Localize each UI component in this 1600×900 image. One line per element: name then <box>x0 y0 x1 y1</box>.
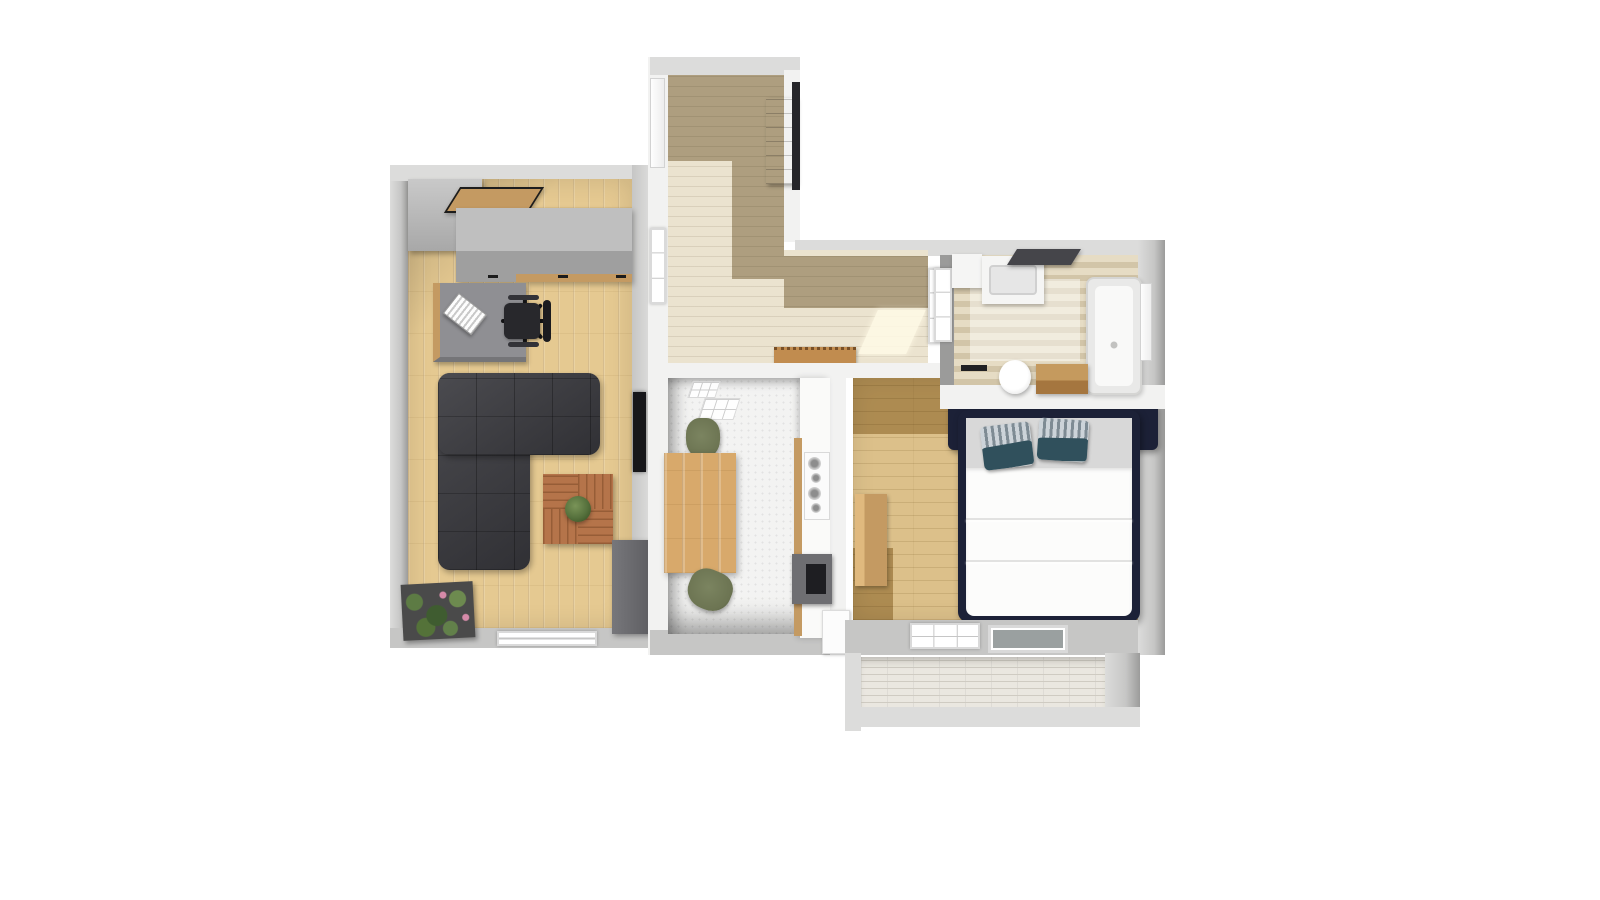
bathroom-interior-window <box>934 268 952 342</box>
bed-pillow <box>980 421 1035 471</box>
lowboard <box>612 540 650 634</box>
cabinet-side-panel <box>792 82 800 190</box>
chair-armrest <box>508 295 539 300</box>
chair-seat <box>504 303 540 340</box>
bedroom-wall-top <box>845 363 941 378</box>
pillow-solid <box>1037 438 1090 462</box>
planter-box <box>401 581 476 641</box>
balcony-floor <box>861 657 1105 709</box>
tub-drain <box>1111 342 1118 349</box>
sink-basin <box>806 564 826 594</box>
bathtub <box>1086 277 1142 395</box>
chair-backrest <box>543 300 551 341</box>
sideboard-handle <box>558 275 568 278</box>
vanity-mirror <box>1007 249 1081 265</box>
burner <box>811 473 821 483</box>
corner-sofa-back <box>438 373 600 455</box>
sideboard-handle <box>616 275 626 278</box>
cooktop <box>804 452 830 520</box>
skylight-reflection <box>687 381 721 398</box>
entrance-door <box>650 78 665 168</box>
table-plant <box>565 496 591 522</box>
bathroom-door <box>1140 283 1152 361</box>
hallway-wall-top <box>650 57 800 75</box>
apartment-floor-plan <box>0 0 1600 900</box>
glazed-door <box>650 228 666 304</box>
floor-plan-canvas <box>0 0 1600 900</box>
sink-basin <box>989 265 1036 296</box>
sunlight-patch <box>858 310 926 354</box>
toilet <box>999 360 1031 394</box>
office-chair <box>498 294 552 348</box>
burner <box>808 487 821 500</box>
dining-chair <box>686 418 720 458</box>
burner <box>808 457 821 470</box>
bathroom-wood-cabinet <box>1036 364 1088 394</box>
sideboard <box>456 208 632 282</box>
duvet-fold <box>966 518 1132 520</box>
kitchen-sink-unit <box>792 554 832 604</box>
bedroom-cabinet <box>855 494 887 586</box>
sideboard-handle <box>488 275 498 278</box>
vanity-side-cabinet <box>952 254 982 288</box>
bedroom-window <box>910 623 980 649</box>
living-room-window <box>497 631 597 646</box>
tub-basin <box>1095 286 1133 386</box>
bed-pillow <box>1037 417 1090 462</box>
balcony-wall-right <box>1105 653 1140 715</box>
balcony-wall-bottom <box>861 707 1140 727</box>
burner <box>811 503 821 513</box>
dining-table <box>664 453 736 573</box>
balcony-wall-left <box>845 653 861 731</box>
living-room-wall-left <box>390 165 408 648</box>
bed-duvet <box>966 468 1132 616</box>
chair-armrest <box>508 342 539 347</box>
sideboard-wood-top <box>516 274 632 282</box>
balcony-glass-door <box>988 625 1068 653</box>
duvet-fold <box>966 560 1132 562</box>
counter-wood-front <box>794 438 802 636</box>
skylight-reflection <box>697 398 740 420</box>
floor-shadow <box>784 256 928 308</box>
towel-bar <box>961 365 987 371</box>
wall-tv <box>633 392 646 472</box>
